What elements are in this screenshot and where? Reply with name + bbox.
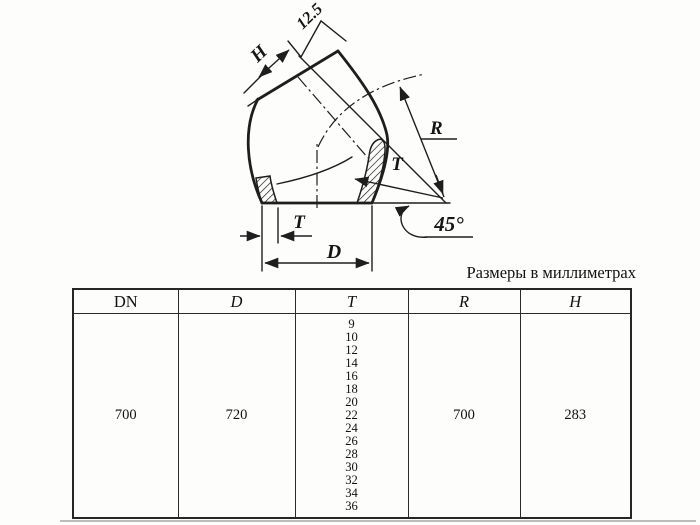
- table-header-row: DN D T R H: [73, 289, 631, 314]
- elbow-drawing: 12.5 H R T 45° T D: [0, 0, 700, 287]
- t-values-list: 91012141618202224262830323436: [296, 318, 408, 512]
- cell-t: 91012141618202224262830323436: [295, 314, 408, 519]
- cell-d: 720: [178, 314, 295, 519]
- h-dimension-label: H: [246, 41, 273, 68]
- units-note: Размеры в миллиметрах: [467, 263, 637, 283]
- cell-dn: 700: [73, 314, 178, 519]
- dimensions-table: DN D T R H 700 720 910121416182022242628…: [72, 288, 632, 519]
- bore-interior-curve: [277, 157, 352, 184]
- t-dimension-label: T: [293, 212, 306, 233]
- angle-leader-arc: [401, 206, 427, 237]
- cell-h: 283: [520, 314, 631, 519]
- r-dimension-label: R: [429, 118, 443, 139]
- table-data-row: 700 720 91012141618202224262830323436 70…: [73, 314, 631, 519]
- r-dimension-vertex-arrow: [436, 175, 443, 194]
- header-r: R: [408, 289, 520, 314]
- header-t: T: [295, 289, 408, 314]
- page: 12.5 H R T 45° T D Размеры в миллиметрах…: [0, 0, 700, 525]
- cell-r: 700: [408, 314, 520, 519]
- roughness-value-label: 12.5: [292, 0, 326, 33]
- header-h: H: [520, 289, 631, 314]
- wall-section-inner-hatched: [357, 139, 385, 203]
- page-divider-rule: [60, 520, 696, 522]
- angle-label: 45°: [433, 212, 464, 236]
- t-wall-label: T: [391, 154, 404, 175]
- header-d: D: [178, 289, 295, 314]
- d-dimension-label: D: [326, 241, 341, 263]
- header-dn: DN: [73, 289, 178, 314]
